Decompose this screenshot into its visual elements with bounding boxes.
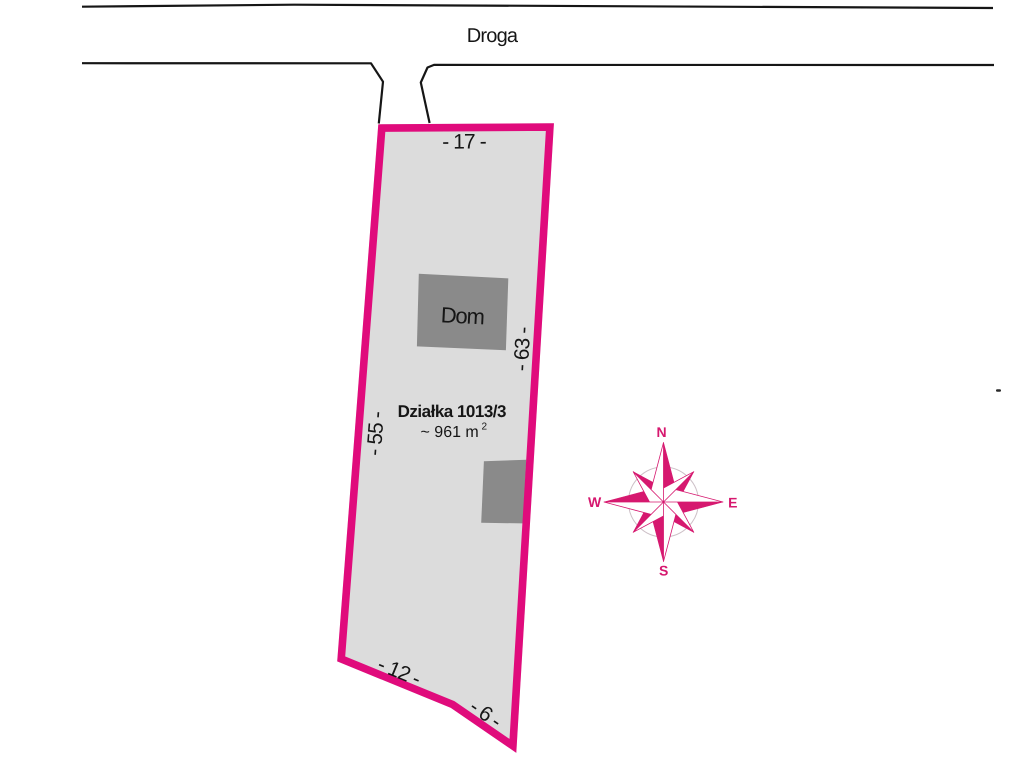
- svg-text:W: W: [588, 494, 602, 510]
- svg-text:- 17 -: - 17 -: [442, 130, 487, 153]
- svg-text:E: E: [728, 495, 737, 511]
- svg-text:Droga: Droga: [467, 25, 519, 47]
- svg-text:- 63 -: - 63 -: [510, 326, 536, 372]
- svg-text:Dom: Dom: [440, 302, 484, 329]
- svg-text:N: N: [656, 424, 666, 440]
- svg-text:2: 2: [482, 422, 488, 433]
- svg-text:- 55 -: - 55 -: [363, 410, 389, 456]
- svg-text:S: S: [659, 563, 668, 579]
- svg-text:~ 961 m: ~ 961 m: [421, 424, 479, 441]
- svg-text:Działka 1013/3: Działka 1013/3: [398, 402, 506, 421]
